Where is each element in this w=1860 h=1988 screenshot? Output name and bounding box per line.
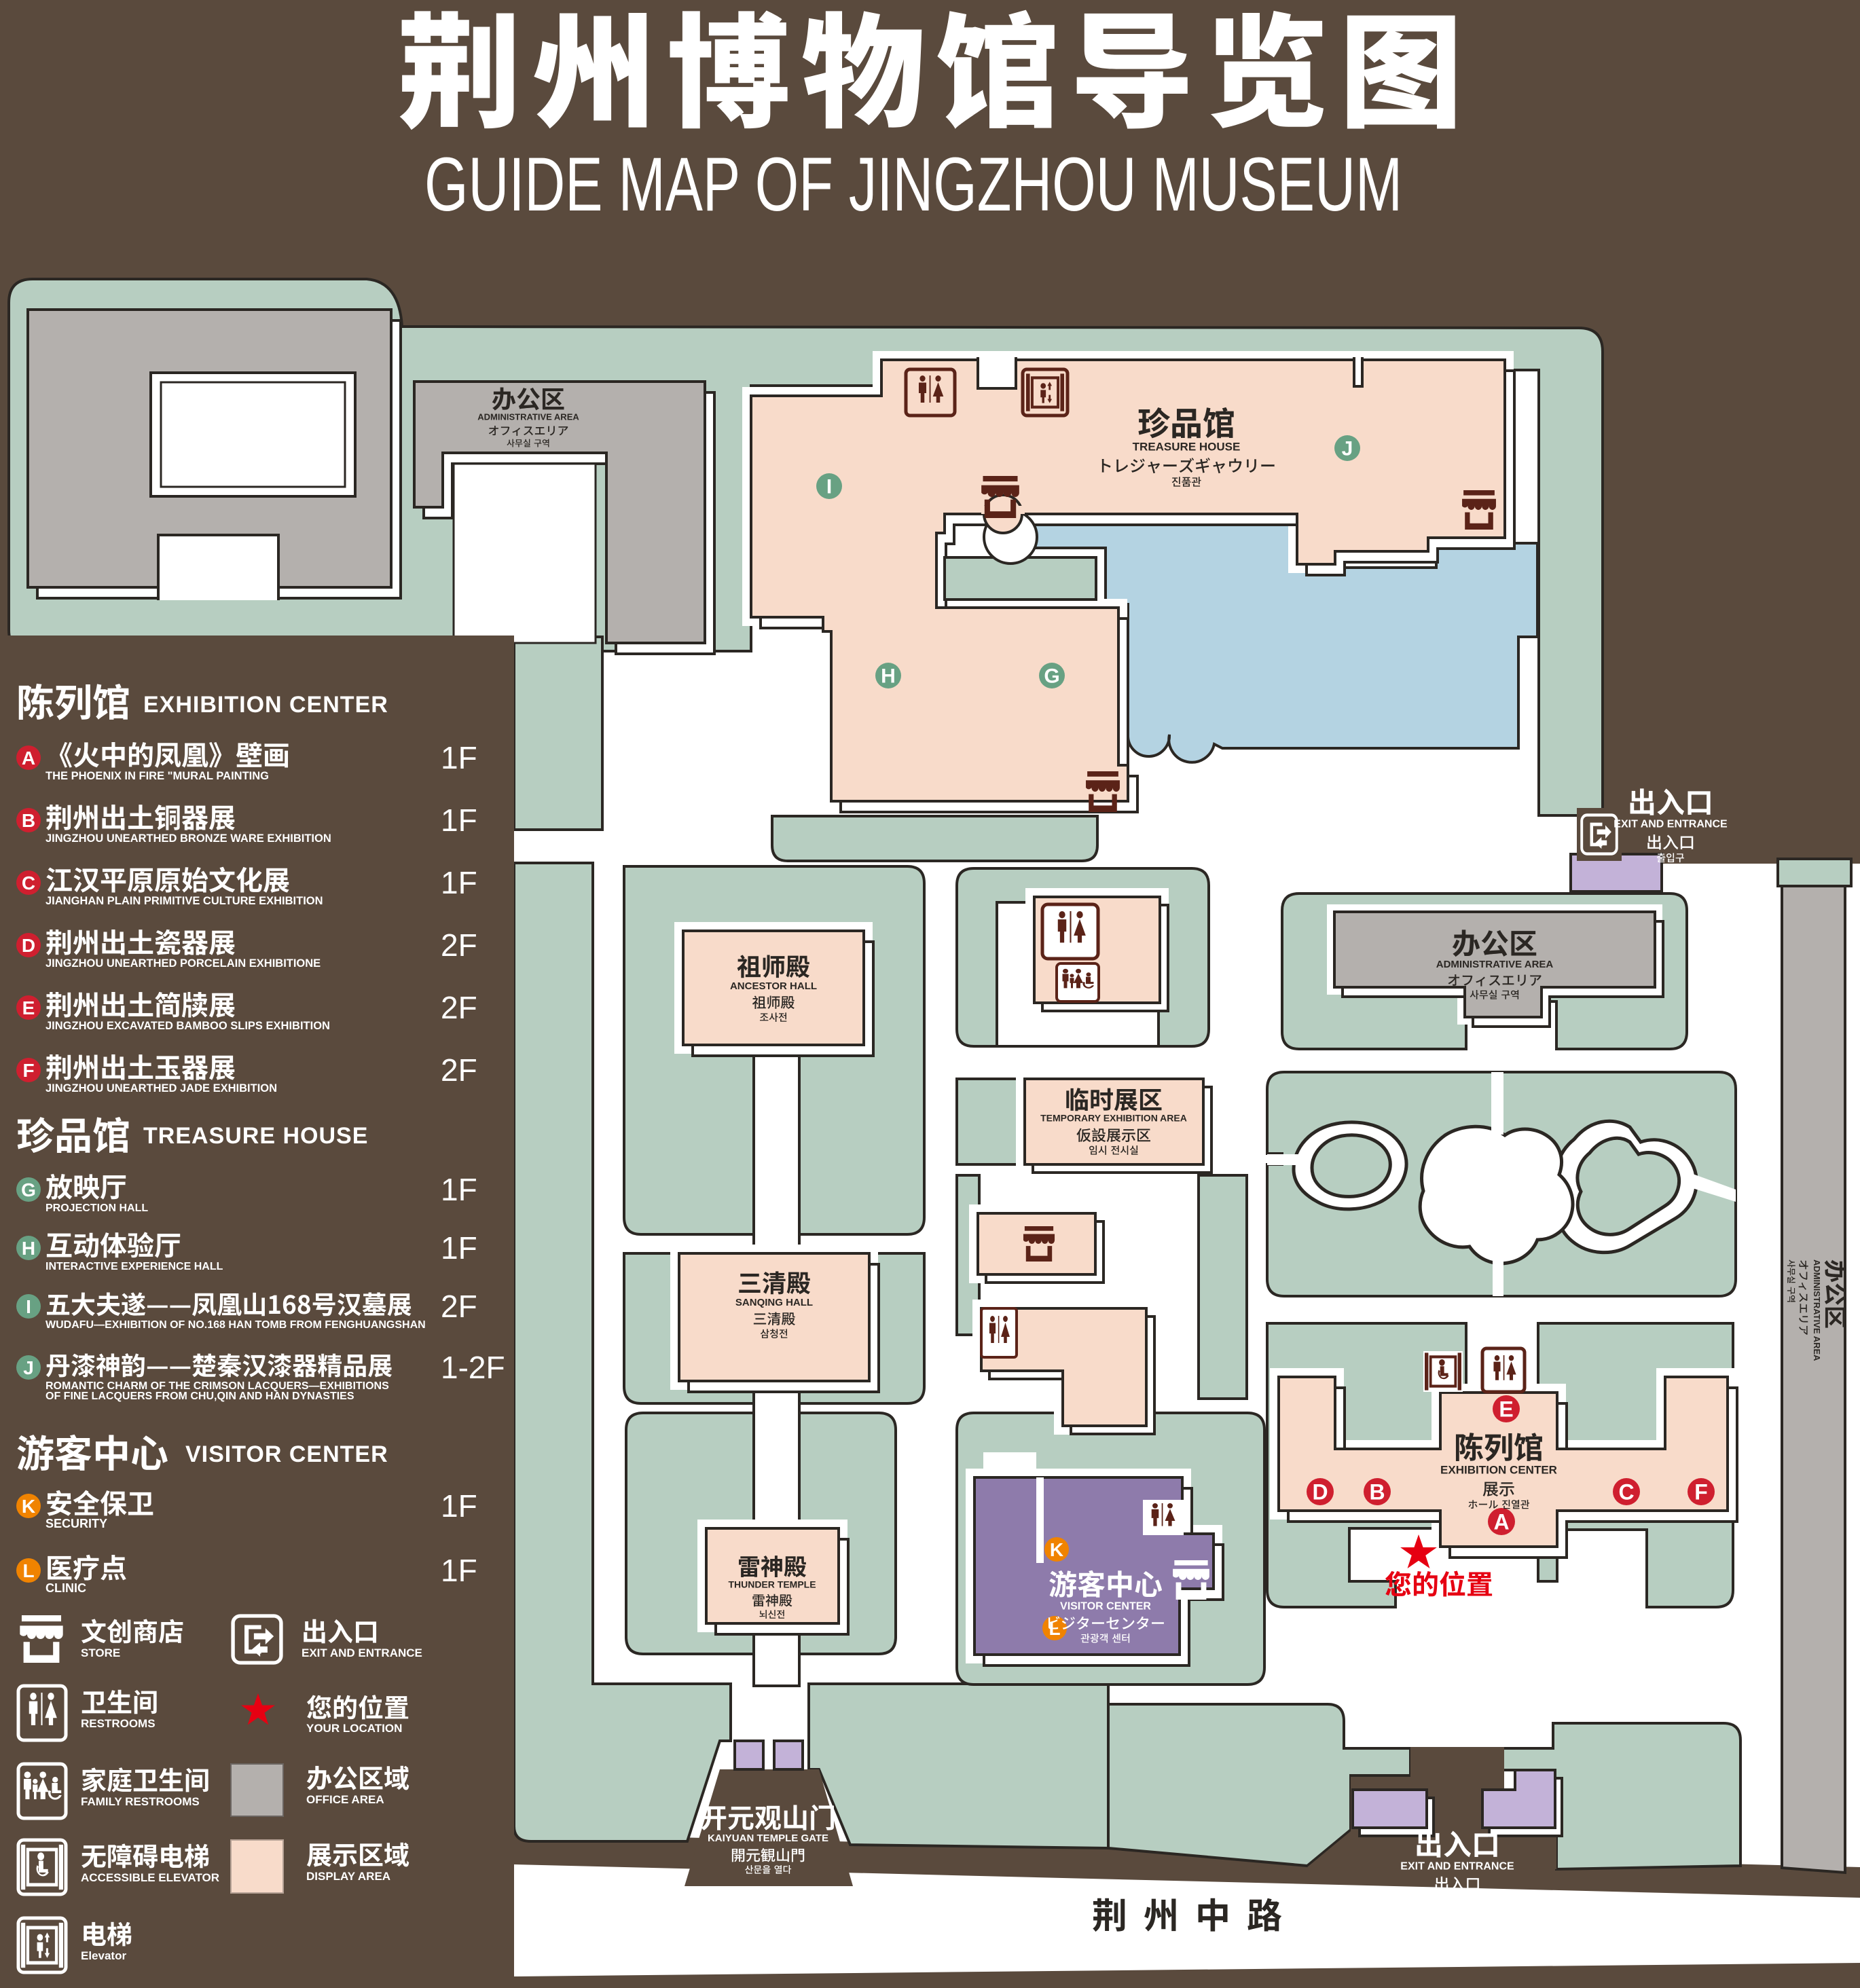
svg-text:I: I <box>26 1296 31 1317</box>
svg-text:ANCESTOR HALL: ANCESTOR HALL <box>730 980 817 992</box>
svg-text:2F: 2F <box>441 990 477 1025</box>
svg-text:1F: 1F <box>441 865 477 900</box>
svg-text:C: C <box>22 872 35 894</box>
svg-text:CLINIC: CLINIC <box>45 1581 86 1595</box>
svg-text:EXIT AND ENTRANCE: EXIT AND ENTRANCE <box>302 1646 422 1659</box>
svg-text:A: A <box>1493 1509 1509 1534</box>
svg-text:JINGZHOU UNEARTHED JADE EXHIBI: JINGZHOU UNEARTHED JADE EXHIBITION <box>45 1082 277 1094</box>
svg-text:G: G <box>1044 665 1059 688</box>
svg-text:THE PHOENIX IN FIRE "MURAL PAI: THE PHOENIX IN FIRE "MURAL PAINTING <box>45 770 269 782</box>
svg-text:JINGZHOU UNEARTHED BRONZE WARE: JINGZHOU UNEARTHED BRONZE WARE EXHIBITIO… <box>45 832 331 845</box>
svg-text:B: B <box>1369 1479 1385 1504</box>
svg-text:SANQING HALL: SANQING HALL <box>735 1297 813 1308</box>
svg-text:H: H <box>881 665 896 688</box>
svg-text:JIANGHAN PLAIN PRIMITIVE CULTU: JIANGHAN PLAIN PRIMITIVE CULTURE EXHIBIT… <box>45 895 323 907</box>
svg-text:OFFICE AREA: OFFICE AREA <box>306 1793 384 1806</box>
svg-text:J: J <box>23 1357 34 1378</box>
svg-text:JINGZHOU EXCAVATED BAMBOO SLIP: JINGZHOU EXCAVATED BAMBOO SLIPS EXHIBITI… <box>45 1020 330 1032</box>
svg-text:D: D <box>22 935 35 956</box>
svg-text:STORE: STORE <box>81 1646 120 1659</box>
svg-text:1F: 1F <box>441 803 477 838</box>
svg-text:YOUR LOCATION: YOUR LOCATION <box>306 1722 402 1735</box>
svg-text:D: D <box>1312 1479 1328 1504</box>
svg-text:F: F <box>22 1060 34 1081</box>
svg-text:L: L <box>22 1560 34 1581</box>
svg-text:1F: 1F <box>441 1230 477 1266</box>
svg-text:EXHIBITION CENTER: EXHIBITION CENTER <box>1440 1464 1557 1477</box>
svg-text:2F: 2F <box>441 1289 477 1324</box>
svg-text:EXHIBITION CENTER: EXHIBITION CENTER <box>143 692 388 718</box>
svg-text:1F: 1F <box>441 1488 477 1524</box>
svg-text:1F: 1F <box>441 740 477 775</box>
svg-text:I: I <box>826 476 832 498</box>
svg-text:PROJECTION HALL: PROJECTION HALL <box>45 1202 148 1214</box>
svg-text:ADMINISTRATIVE AREA: ADMINISTRATIVE AREA <box>1436 959 1554 970</box>
svg-text:2F: 2F <box>441 927 477 963</box>
svg-text:E: E <box>22 997 35 1018</box>
svg-text:THUNDER TEMPLE: THUNDER TEMPLE <box>728 1579 816 1590</box>
svg-text:TREASURE HOUSE: TREASURE HOUSE <box>143 1123 368 1149</box>
svg-text:DISPLAY AREA: DISPLAY AREA <box>306 1870 390 1883</box>
svg-text:C: C <box>1618 1479 1634 1504</box>
svg-text:G: G <box>21 1179 36 1200</box>
svg-text:INTERACTIVE EXPERIENCE HALL: INTERACTIVE EXPERIENCE HALL <box>45 1261 223 1272</box>
svg-text:VISITOR CENTER: VISITOR CENTER <box>185 1441 388 1467</box>
svg-text:FAMILY RESTROOMS: FAMILY RESTROOMS <box>81 1795 200 1808</box>
svg-text:VISITOR CENTER: VISITOR CENTER <box>1060 1600 1151 1612</box>
svg-text:1F: 1F <box>441 1172 477 1207</box>
svg-text:GUIDE MAP OF JINGZHOU MUSEUM: GUIDE MAP OF JINGZHOU MUSEUM <box>424 142 1402 227</box>
svg-text:1F: 1F <box>441 1553 477 1588</box>
svg-text:SECURITY: SECURITY <box>45 1517 107 1530</box>
svg-text:ADMINISTRATIVE AREA: ADMINISTRATIVE AREA <box>477 411 579 422</box>
svg-text:ACCESSIBLE ELEVATOR: ACCESSIBLE ELEVATOR <box>81 1871 219 1884</box>
svg-text:TREASURE HOUSE: TREASURE HOUSE <box>1133 441 1241 454</box>
svg-text:TEMPORARY EXHIBITION AREA: TEMPORARY EXHIBITION AREA <box>1040 1113 1187 1124</box>
svg-text:WUDAFU—EXHIBITION OF NO.168 HA: WUDAFU—EXHIBITION OF NO.168 HAN TOMB FRO… <box>45 1319 426 1331</box>
svg-text:1-2F: 1-2F <box>441 1350 505 1385</box>
svg-text:B: B <box>22 810 35 831</box>
svg-text:J: J <box>1342 438 1353 460</box>
svg-text:A: A <box>22 748 35 769</box>
svg-text:K: K <box>22 1496 35 1517</box>
svg-text:EXIT AND ENTRANCE: EXIT AND ENTRANCE <box>1400 1860 1514 1872</box>
svg-text:ADMINISTRATIVE AREA: ADMINISTRATIVE AREA <box>1812 1259 1822 1361</box>
svg-text:2F: 2F <box>441 1052 477 1088</box>
svg-text:OF FINE LACQUERS FROM CHU,QIN: OF FINE LACQUERS FROM CHU,QIN AND HAN DY… <box>45 1391 354 1402</box>
svg-text:E: E <box>1499 1397 1513 1421</box>
svg-text:K: K <box>1050 1539 1063 1560</box>
svg-text:RESTROOMS: RESTROOMS <box>81 1717 156 1730</box>
svg-text:H: H <box>22 1238 35 1259</box>
svg-text:EXIT AND ENTRANCE: EXIT AND ENTRANCE <box>1613 818 1728 830</box>
svg-text:Elevator: Elevator <box>81 1949 126 1962</box>
svg-text:KAIYUAN TEMPLE GATE: KAIYUAN TEMPLE GATE <box>708 1833 828 1844</box>
svg-text:JINGZHOU UNEARTHED PORCELAIN E: JINGZHOU UNEARTHED PORCELAIN EXHIBITIONE <box>45 957 321 970</box>
svg-text:F: F <box>1694 1479 1708 1504</box>
